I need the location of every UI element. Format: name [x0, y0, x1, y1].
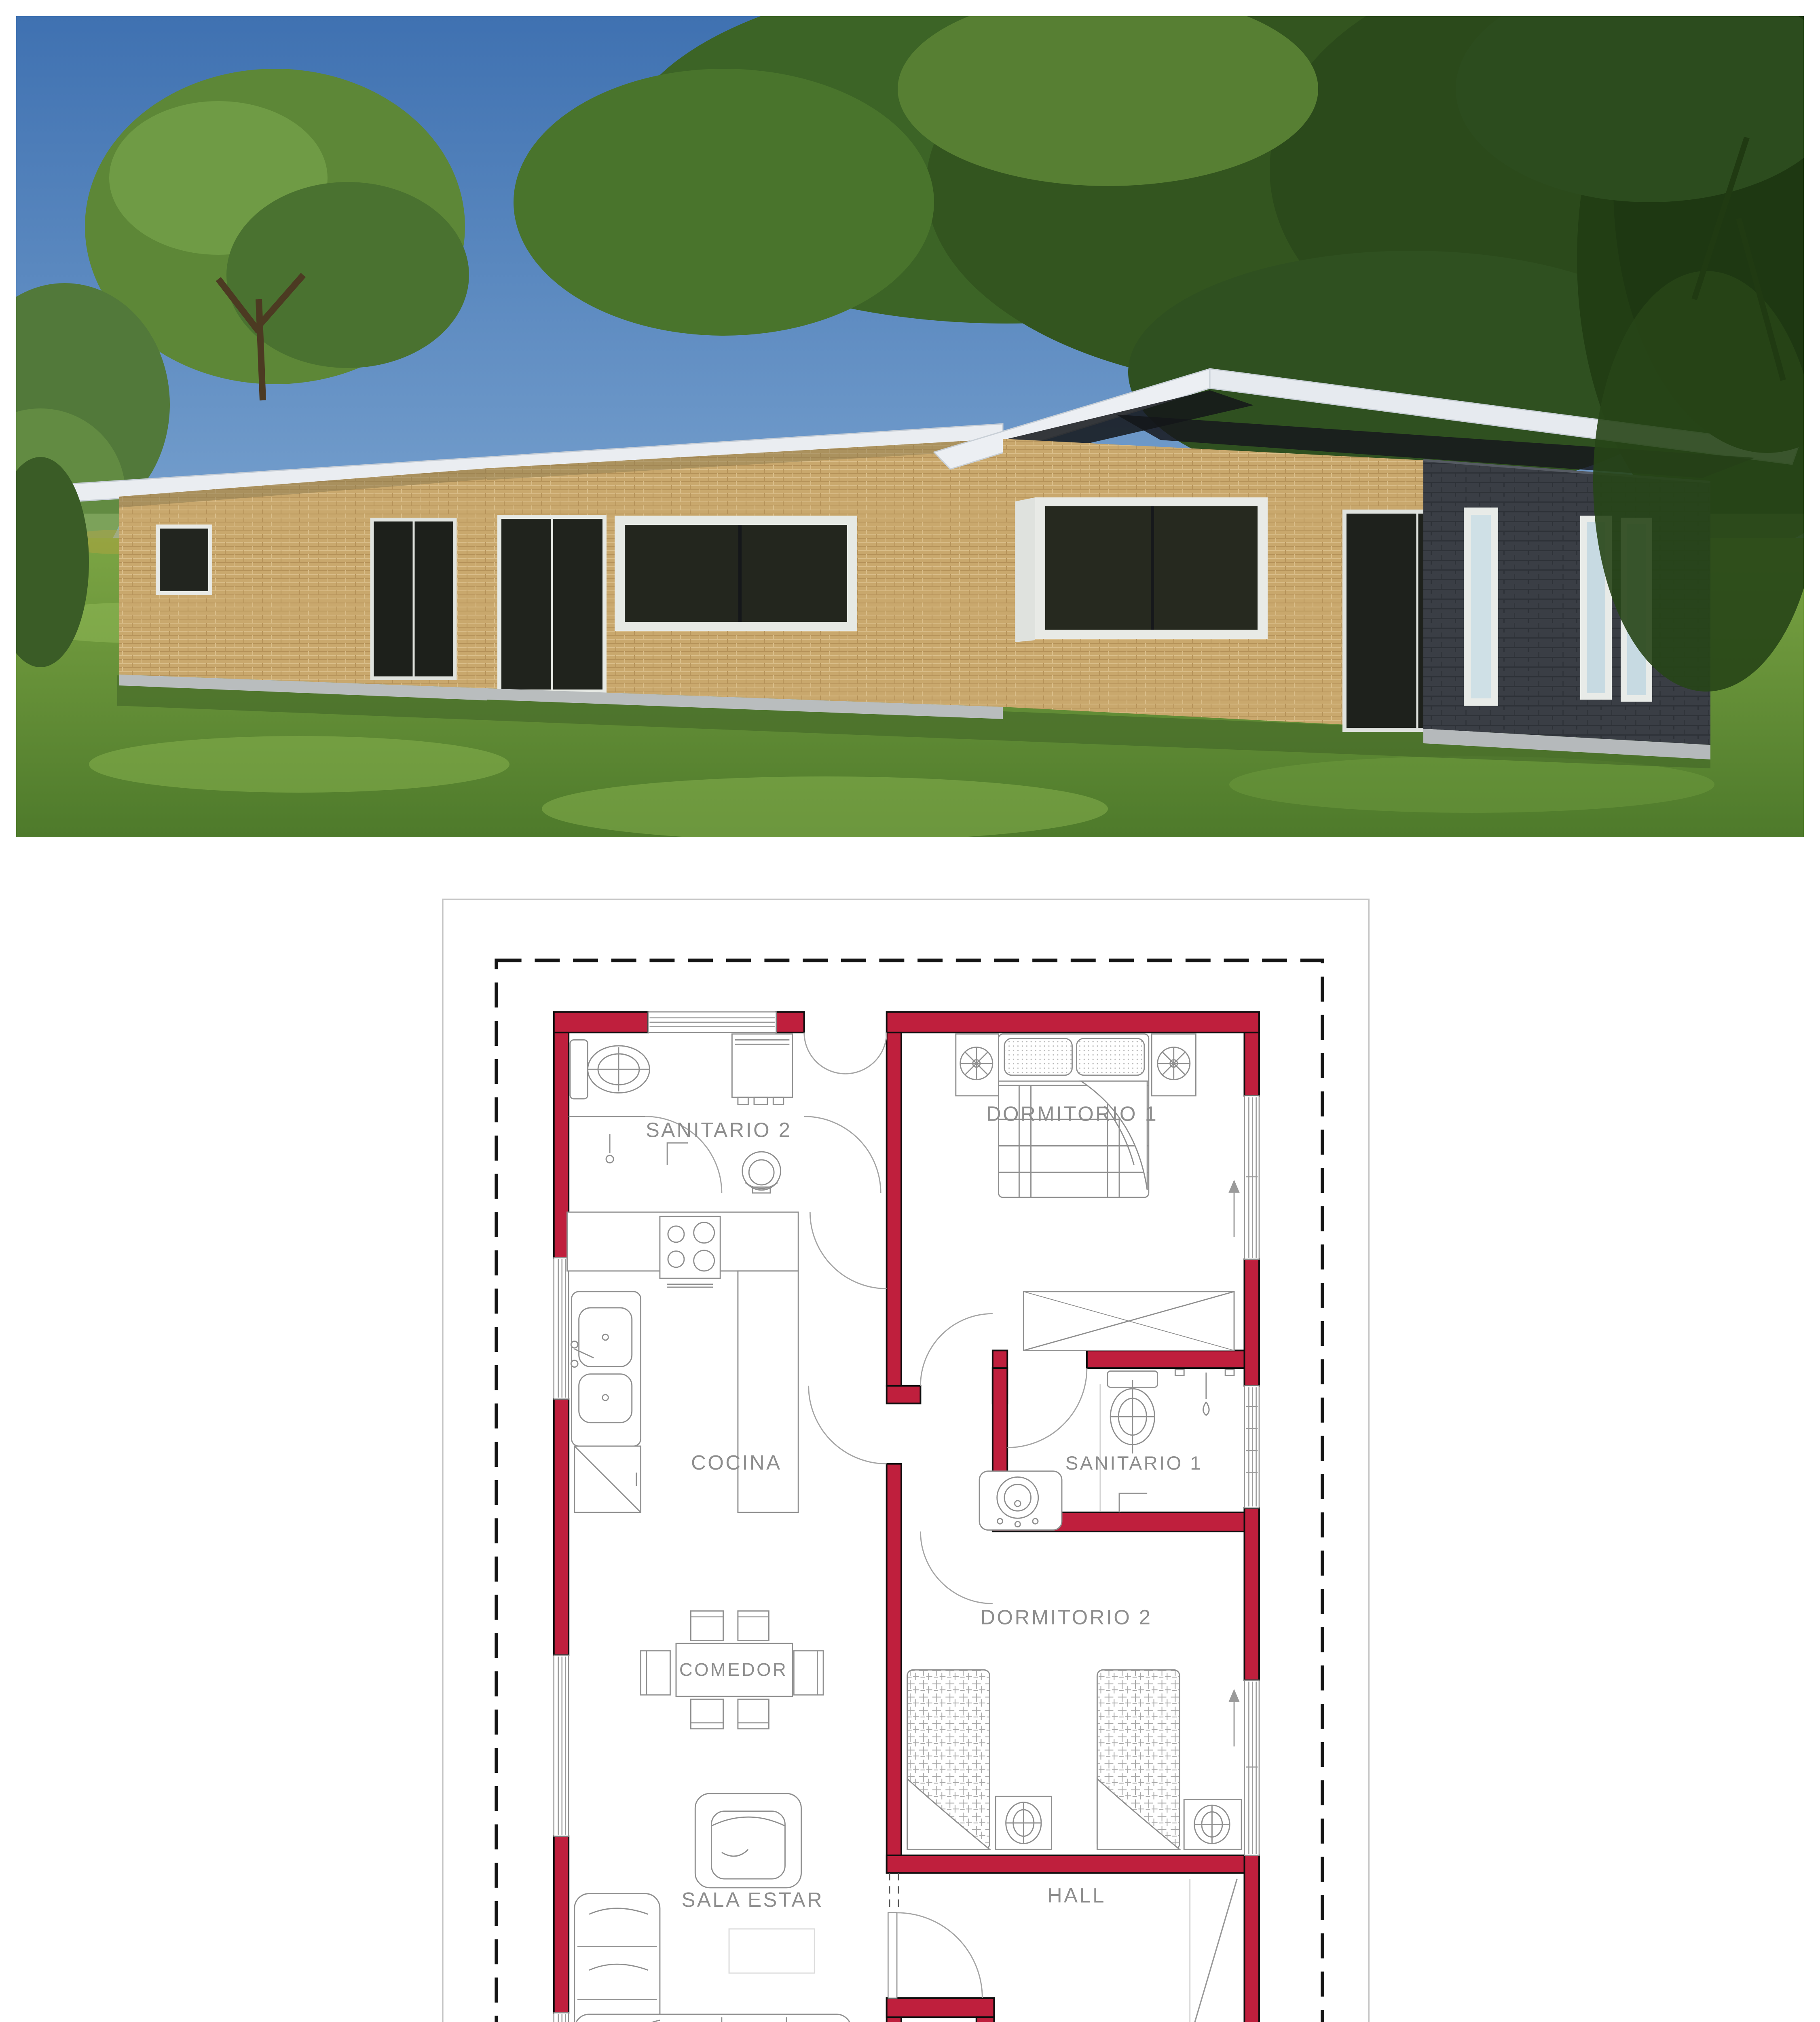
front-door-leaf: [888, 1913, 897, 1998]
chair: [641, 1651, 670, 1695]
chair: [691, 1699, 723, 1729]
single-bed: [907, 1670, 990, 1849]
kitchen-sink-icon: [571, 1292, 640, 1446]
centre-corner-window-glass: [625, 525, 847, 622]
chair: [691, 1611, 723, 1641]
window-top-sanitario2: [648, 1012, 776, 1032]
kitchen-lower-cabinet: [575, 1446, 641, 1512]
label-dormitorio2: DORMITORIO 2: [980, 1605, 1152, 1629]
nightstand: [996, 1796, 1051, 1849]
window-right-sanitario1: [1244, 1386, 1259, 1508]
label-sala-estar: SALA ESTAR: [682, 1888, 824, 1911]
label-sanitario2: SANITARIO 2: [646, 1119, 792, 1142]
label-dormitorio1: DORMITORIO 1: [986, 1102, 1158, 1125]
lamp-icon: [960, 1047, 993, 1080]
rendering-scene: [16, 16, 1804, 837]
label-comedor: COMEDOR: [679, 1659, 788, 1680]
armchair: [695, 1794, 801, 1888]
floor-plan: SANITARIO 2 DORMITORIO 1 COCINA SANITARI…: [442, 899, 1370, 2022]
wardrobe-closet: [1023, 1292, 1234, 1351]
window-right-dormitorio1: [1244, 1096, 1259, 1259]
left-wing-window: [158, 527, 210, 593]
nightstand: [1184, 1800, 1241, 1850]
corner-window-return: [1015, 497, 1035, 642]
stove-icon: [660, 1216, 720, 1287]
floor-plan-drawing: SANITARIO 2 DORMITORIO 1 COCINA SANITARI…: [442, 899, 1370, 2022]
window-right-dormitorio2: [1244, 1680, 1259, 1855]
label-hall: HALL: [1047, 1884, 1106, 1907]
kitchen-counter-column: [738, 1271, 798, 1512]
lamp-icon: [1158, 1047, 1190, 1080]
stone-window-1-glass: [1471, 515, 1491, 698]
label-sanitario1: SANITARIO 1: [1065, 1453, 1203, 1474]
bathroom-sink-icon: [979, 1471, 1062, 1530]
exterior-rendering: [16, 16, 1804, 837]
label-cocina: COCINA: [691, 1451, 782, 1474]
window-left-comedor: [554, 1655, 569, 1836]
window-left-kitchen: [554, 1258, 569, 1399]
window-left-sala: [554, 2013, 569, 2022]
chair: [738, 1699, 769, 1729]
chair: [738, 1611, 769, 1641]
single-bed: [1097, 1670, 1180, 1849]
chair: [794, 1651, 823, 1695]
